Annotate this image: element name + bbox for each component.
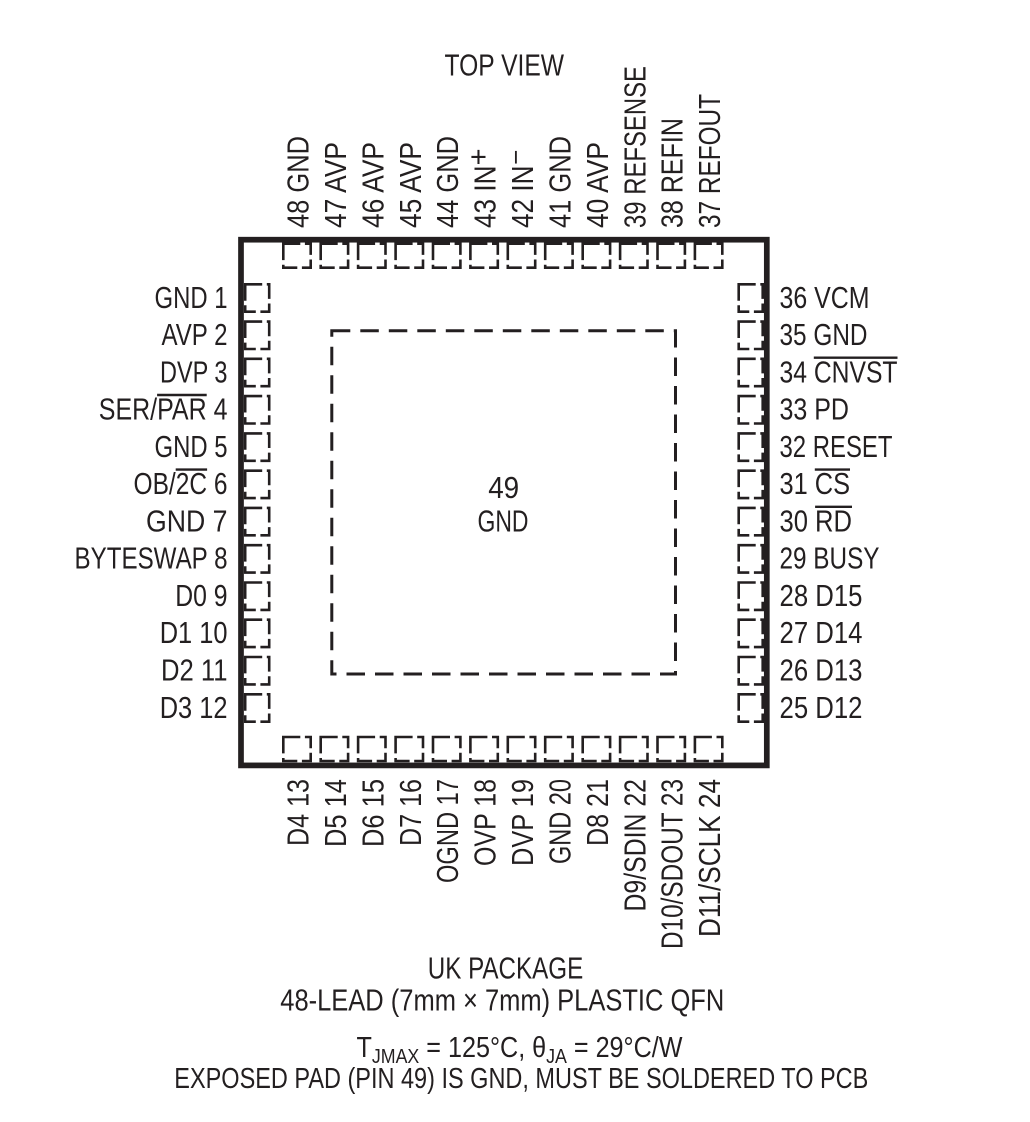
svg-text:DVP 3: DVP 3 (160, 354, 228, 389)
svg-text:28 D15: 28 D15 (780, 578, 863, 613)
svg-text:D7 16: D7 16 (393, 779, 428, 846)
svg-text:= 125°C,: = 125°C, (426, 1032, 525, 1064)
svg-text:42 IN: 42 IN (505, 166, 540, 229)
svg-text:40 AVP: 40 AVP (580, 142, 615, 228)
svg-text:D10/SDOUT 23: D10/SDOUT 23 (655, 779, 690, 949)
svg-text:GND: GND (478, 503, 529, 538)
svg-text:= 29°C/W: = 29°C/W (574, 1032, 683, 1064)
svg-text:46 AVP: 46 AVP (355, 142, 390, 228)
svg-text:GND 20: GND 20 (542, 779, 577, 864)
svg-text:EXPOSED PAD (PIN 49) IS GND, M: EXPOSED PAD (PIN 49) IS GND, MUST BE SOL… (174, 1063, 868, 1095)
svg-text:48 GND: 48 GND (281, 136, 316, 228)
svg-text:D2 11: D2 11 (161, 653, 228, 688)
svg-text:49: 49 (488, 470, 519, 505)
svg-text:BYTESWAP 8: BYTESWAP 8 (75, 541, 228, 576)
svg-text:GND 5: GND 5 (155, 429, 228, 464)
svg-text:D8 21: D8 21 (580, 779, 615, 846)
svg-text:26 D13: 26 D13 (780, 653, 863, 688)
svg-text:30 RD: 30 RD (780, 503, 853, 538)
svg-text:34 CNVST: 34 CNVST (780, 354, 898, 389)
svg-text:D9/SDIN 22: D9/SDIN 22 (617, 779, 652, 912)
svg-text:35 GND: 35 GND (780, 317, 868, 352)
svg-text:33 PD: 33 PD (780, 392, 850, 427)
svg-text:27 D14: 27 D14 (780, 615, 863, 650)
svg-text:OGND 17: OGND 17 (430, 779, 465, 883)
svg-text:D0 9: D0 9 (175, 578, 227, 613)
svg-text:43 IN: 43 IN (468, 166, 503, 228)
svg-text:TOP VIEW: TOP VIEW (445, 48, 565, 83)
svg-text:32 RESET: 32 RESET (780, 429, 893, 464)
svg-text:39 REFSENSE: 39 REFSENSE (617, 66, 652, 228)
svg-text:25 D12: 25 D12 (780, 690, 863, 725)
svg-text:41 GND: 41 GND (542, 136, 577, 228)
svg-text:−: − (501, 150, 531, 165)
svg-text:D1 10: D1 10 (160, 615, 228, 650)
svg-text:OVP 18: OVP 18 (468, 779, 503, 866)
svg-text:OB/2C 6: OB/2C 6 (134, 466, 228, 501)
svg-text:θ: θ (532, 1032, 546, 1064)
svg-text:38 REFIN: 38 REFIN (655, 118, 690, 228)
svg-text:AVP 2: AVP 2 (162, 317, 228, 352)
svg-text:D3 12: D3 12 (160, 690, 228, 725)
svg-text:D5 14: D5 14 (318, 779, 353, 847)
svg-text:44 GND: 44 GND (430, 136, 465, 228)
svg-text:DVP 19: DVP 19 (505, 779, 540, 866)
svg-text:T: T (357, 1032, 373, 1064)
svg-text:48-LEAD (7mm × 7mm) PLASTIC QF: 48-LEAD (7mm × 7mm) PLASTIC QFN (280, 983, 724, 1018)
svg-text:45 AVP: 45 AVP (393, 142, 428, 228)
svg-text:36 VCM: 36 VCM (780, 280, 870, 315)
svg-text:SER/PAR 4: SER/PAR 4 (99, 392, 228, 427)
svg-text:37 REFOUT: 37 REFOUT (692, 94, 727, 228)
svg-text:29 BUSY: 29 BUSY (780, 541, 880, 576)
svg-text:UK PACKAGE: UK PACKAGE (428, 951, 584, 986)
svg-text:D4 13: D4 13 (281, 779, 316, 846)
svg-text:GND 1: GND 1 (155, 280, 228, 315)
svg-text:31 CS: 31 CS (780, 466, 851, 501)
svg-text:D11/SCLK 24: D11/SCLK 24 (692, 779, 727, 937)
svg-text:GND 7: GND 7 (146, 503, 228, 538)
svg-text:47 AVP: 47 AVP (318, 142, 353, 228)
svg-text:D6 15: D6 15 (355, 779, 390, 847)
svg-text:+: + (463, 148, 495, 165)
